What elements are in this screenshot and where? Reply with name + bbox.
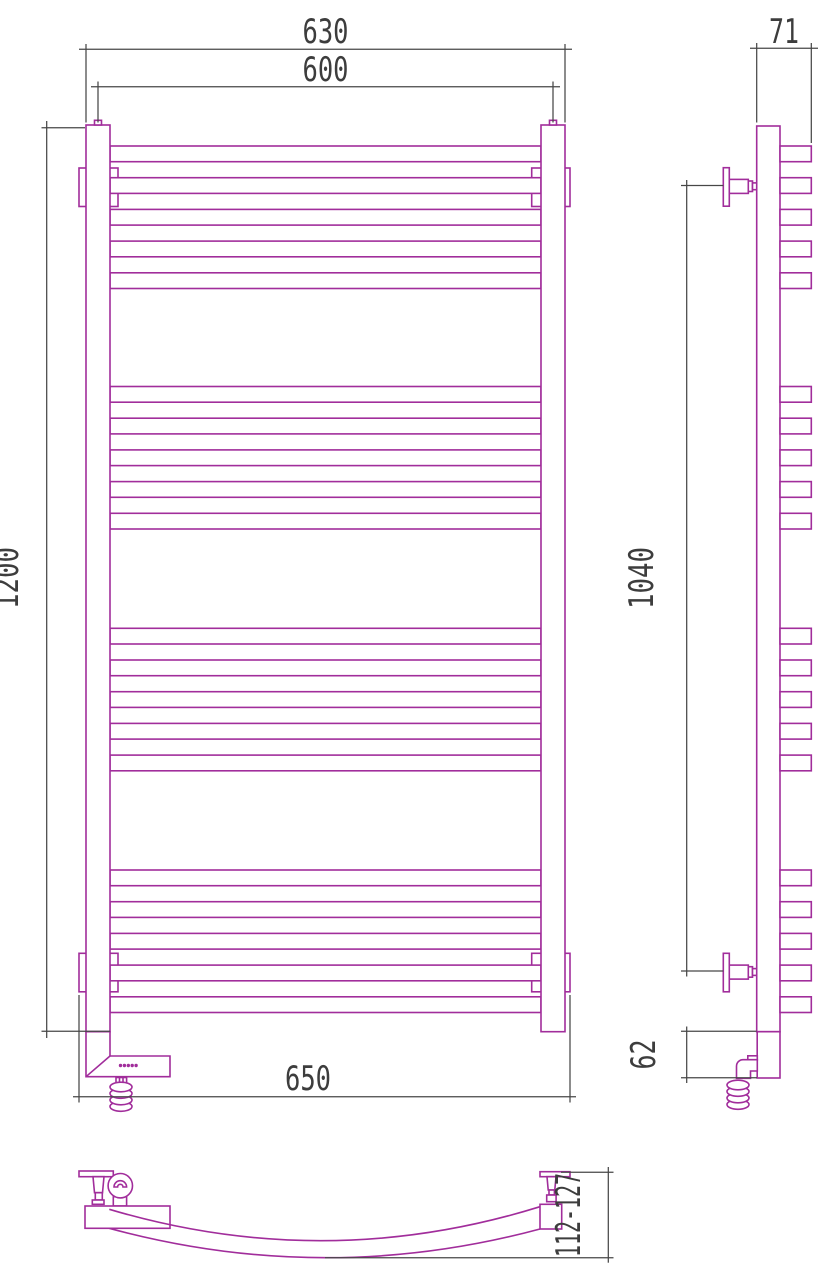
plan-left-post-section xyxy=(85,1206,170,1228)
dim-label-1040: 1040 xyxy=(622,547,662,609)
plan-cable-gland-ring xyxy=(108,1174,132,1207)
side-top-bracket xyxy=(723,168,757,207)
dim-label-1200: 1200 xyxy=(0,547,27,609)
side-post xyxy=(757,126,780,1032)
dim-1040: 1040 xyxy=(622,180,723,977)
front-left-post xyxy=(86,125,110,1032)
side-element-housing xyxy=(757,1032,780,1078)
heating-element-led-indicators xyxy=(119,1064,138,1067)
dim-label-650: 650 xyxy=(285,1059,331,1099)
front-heating-element xyxy=(86,1032,170,1077)
side-bottom-bracket xyxy=(723,953,757,992)
side-cable-elbow xyxy=(737,1056,758,1079)
dim-112-127: 112-127 xyxy=(325,1167,614,1263)
front-view xyxy=(79,120,570,1111)
dim-label-600: 600 xyxy=(303,50,349,90)
side-view xyxy=(723,126,811,1109)
dim-label-112-127: 112-127 xyxy=(549,1173,589,1257)
dim-label-630: 630 xyxy=(303,12,349,52)
front-right-post xyxy=(541,125,565,1032)
dim-600: 600 xyxy=(91,50,560,123)
technical-drawing-page: 630 600 1200 650 71 xyxy=(0,0,832,1280)
front-rungs xyxy=(110,146,541,1013)
side-rungs xyxy=(780,146,811,1013)
side-power-cable-coil xyxy=(727,1080,749,1109)
plan-curved-rung xyxy=(109,1207,540,1258)
towel-rail-drawing: 630 600 1200 650 71 xyxy=(0,0,832,1280)
dim-71: 71 xyxy=(750,12,818,143)
front-power-cable-coil xyxy=(110,1078,132,1112)
front-wall-brackets xyxy=(79,168,570,992)
dim-label-71: 71 xyxy=(769,12,799,52)
plan-view xyxy=(79,1171,570,1258)
dim-label-62: 62 xyxy=(624,1040,664,1070)
